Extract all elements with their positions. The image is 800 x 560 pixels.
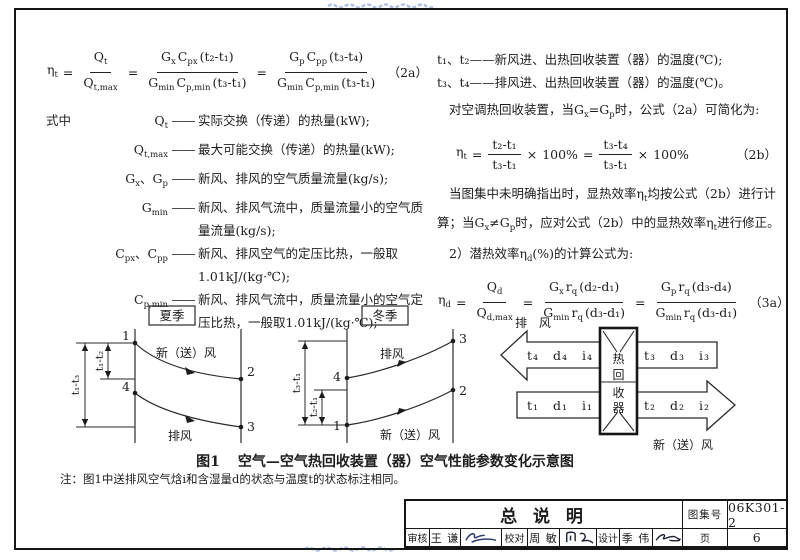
- heat-exchanger-diagram: 热 回 收 器 排 风 新（送）风 t₄ d₄ i₄ t₃ d₃ i₃ t₁ d…: [493, 303, 750, 457]
- supply-curve-label: 新（送）风: [156, 345, 216, 360]
- definition-dash: ——: [168, 109, 198, 132]
- atlas-number-value: 06K301-2: [728, 501, 786, 528]
- dim-label-t1-t3: t₁-t₃: [70, 375, 82, 395]
- box-char-4: 器: [612, 401, 624, 415]
- page-label: 页: [683, 529, 727, 546]
- page: ηt=QtQt,max=GxCpx(t₂-t₁)GminCp,min(t₃-t₁…: [0, 0, 800, 560]
- checker-signature: [560, 529, 596, 546]
- point-number-2: 2: [247, 364, 255, 379]
- definition-term: Gx、Gp: [84, 167, 168, 196]
- definition-text: 最大可能交换（传递）的热量(kW);: [198, 138, 428, 161]
- review-label: 审核: [406, 529, 429, 546]
- point-number-1: 1: [333, 418, 341, 433]
- signature-scribble: [462, 530, 500, 545]
- figure-title: 空气—空气热回收装置（器）空气性能参数变化示意图: [238, 454, 574, 470]
- state-t2d2i2: t₂ d₂ i₂: [644, 398, 710, 413]
- exhaust-curve-label: 排风: [168, 429, 192, 443]
- winter-frame: [298, 306, 453, 443]
- box-char-2: 回: [612, 368, 624, 382]
- definition-row: 式中 Qt —— 实际交换（传递）的热量(kW);: [46, 109, 428, 138]
- simplify-sentence: 对空调热回收装置，当Gx=Gp时，公式（2a）可简化为:: [437, 98, 785, 127]
- box-char-3: 收: [612, 386, 624, 400]
- dim-label-t1-t2: t₁-t₂: [94, 351, 106, 371]
- temp-definition-t34: t₃、t₄——排风进、出热回收装置（器）的温度(℃)。: [437, 71, 785, 94]
- definition-dash: ——: [168, 167, 198, 190]
- checker-name: 周 敏: [528, 529, 559, 546]
- exhaust-curve-label: 排风: [380, 347, 404, 361]
- definition-text: 新风、排风的空气质量流量(kg/s);: [198, 167, 428, 190]
- figure-note: 注：图1中送排风空气焓i和含湿量d的状态与温度t的状态标注相同。: [60, 471, 405, 487]
- definition-dash: ——: [168, 196, 198, 219]
- flow-arrow: [397, 408, 407, 415]
- left-column: ηt=QtQt,max=GxCpx(t₂-t₁)GminCp,min(t₃-t₁…: [46, 48, 428, 334]
- note-sentence-2: 算；当Gx≠Gp时，应对公式（2b）中的显热效率ηt进行修正。: [437, 211, 785, 240]
- state-point-1: [133, 341, 138, 346]
- temp-definition-t12: t₁、t₂——新风进、出热回收装置（器）的温度(℃);: [437, 48, 785, 71]
- doc-title: 总 说 明: [406, 501, 682, 528]
- page-number: 6: [728, 529, 786, 546]
- reviewer-name: 王 谦: [430, 529, 460, 546]
- right-column: t₁、t₂——新风进、出热回收装置（器）的温度(℃); t₃、t₄——排风进、出…: [437, 48, 785, 327]
- dim-arrowhead: [82, 419, 88, 426]
- exchanger-box: 热 回 收 器: [600, 328, 637, 434]
- formula-2b: ηt=t₂-t₁t₃-t₁×100%=t₃-t₄t₃-t₁×100%（2b）: [455, 136, 777, 173]
- flow-arrow: [185, 415, 195, 423]
- check-label: 校对: [502, 529, 527, 546]
- definition-text: 新风、排风气流中，质量流量小的空气质量流量(kg/s);: [198, 196, 428, 242]
- point-number-4: 4: [333, 369, 341, 384]
- summer-diagram: 夏季 新（送）风 排风 1 2 4 3 t₁-t₂ t₁-t₃: [58, 303, 292, 457]
- title-block: 总 说 明 图集号 06K301-2 审核 王 谦 校对 周 敏 设计 季 伟 …: [404, 499, 788, 548]
- figure-number: 图1: [196, 454, 220, 470]
- state-point-3: [239, 425, 244, 430]
- designer-signature: [653, 529, 682, 546]
- state-point-1: [345, 423, 350, 428]
- point-number-2: 2: [459, 383, 467, 398]
- definition-list: 式中 Qt —— 实际交换（传递）的热量(kW); Qt,max —— 最大可能…: [46, 109, 428, 334]
- formula-2a: ηt=QtQt,max=GxCpx(t₂-t₁)GminCp,min(t₃-t₁…: [46, 48, 428, 97]
- definition-term: Gmin: [84, 196, 168, 225]
- dim-label-t3-t1: t₃-t₁: [291, 373, 303, 393]
- season-label: 冬季: [372, 308, 398, 323]
- box-char-1: 热: [612, 352, 624, 366]
- point-number-3: 3: [459, 331, 467, 346]
- definition-term: Qt: [84, 109, 168, 138]
- flow-arrow: [397, 360, 407, 367]
- dim-arrowhead: [302, 342, 308, 349]
- state-point-4: [345, 376, 350, 381]
- definition-text: 新风、排风空气的定压比热，一般取1.01kJ/(kg·℃);: [198, 242, 428, 288]
- state-point-4: [133, 391, 138, 396]
- state-point-2: [239, 377, 244, 382]
- atlas-number-label: 图集号: [683, 501, 727, 528]
- state-point-3: [451, 339, 456, 344]
- point-number-4: 4: [122, 379, 130, 394]
- point-number-1: 1: [122, 328, 130, 343]
- supply-curve: [347, 390, 453, 425]
- definition-row: Qt,max —— 最大可能交换（传递）的热量(kW);: [46, 138, 428, 167]
- designer-name: 季 伟: [620, 529, 652, 546]
- definition-dash: ——: [168, 242, 198, 265]
- definition-term: Cpx、Cpp: [84, 242, 168, 271]
- exhaust-flow-label: 排 风: [515, 316, 555, 330]
- state-t4d4i4: t₄ d₄ i₄: [527, 348, 593, 363]
- signature-scribble: [561, 530, 595, 545]
- signature-scribble: [654, 530, 682, 545]
- state-point-2: [451, 388, 456, 393]
- supply-flow-label: 新（送）风: [653, 437, 713, 452]
- definition-term: Qt,max: [84, 138, 168, 167]
- dim-arrowhead: [82, 344, 88, 351]
- season-label: 夏季: [159, 308, 185, 323]
- definition-row: Cpx、Cpp —— 新风、排风空气的定压比热，一般取1.01kJ/(kg·℃)…: [46, 242, 428, 288]
- design-label: 设计: [597, 529, 619, 546]
- winter-diagram: 冬季 排风 新（送）风 3 4 2 1 t₃-t₁ t₂-t₁: [288, 303, 500, 457]
- definition-row: Gx、Gp —— 新风、排风的空气质量流量(kg/s);: [46, 167, 428, 196]
- summer-frame: [76, 306, 241, 443]
- definition-row: Gmin —— 新风、排风气流中，质量流量小的空气质量流量(kg/s);: [46, 196, 428, 242]
- latent-heading: 2）潜热效率ηd(%)的计算公式为:: [437, 242, 785, 271]
- point-number-3: 3: [247, 419, 255, 434]
- note-sentence-1: 当图集中未明确指出时，显热效率ηt均按公式（2b）进行计: [437, 182, 785, 211]
- definition-dash: ——: [168, 138, 198, 161]
- figure-caption: 图1空气—空气热回收装置（器）空气性能参数变化示意图: [90, 451, 680, 471]
- reviewer-signature: [461, 529, 501, 546]
- dim-arrowhead: [105, 344, 111, 351]
- dim-label-t2-t1: t₂-t₁: [308, 397, 320, 417]
- supply-curve-label: 新（送）风: [380, 427, 440, 442]
- definition-text: 实际交换（传递）的热量(kW);: [198, 109, 428, 132]
- state-t3d3i3: t₃ d₃ i₃: [644, 348, 710, 363]
- where-label: 式中: [46, 109, 84, 132]
- state-t1d1i1: t₁ d₁ i₁: [527, 398, 593, 413]
